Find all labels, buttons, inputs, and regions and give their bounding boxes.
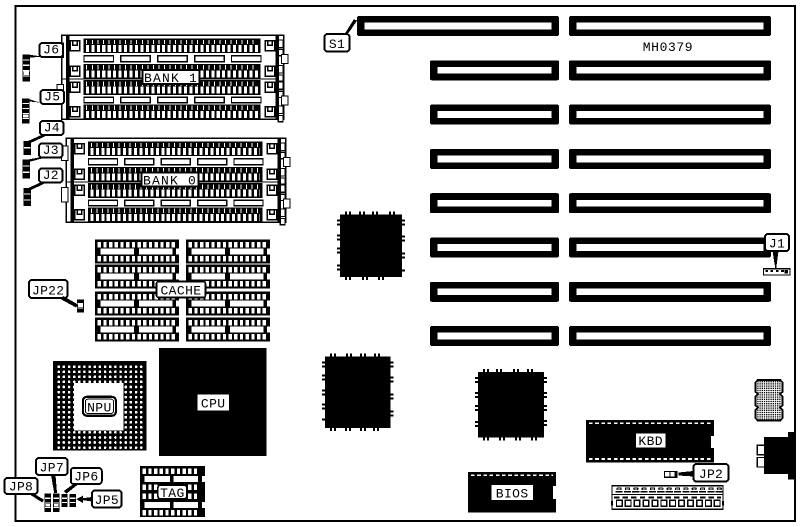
svg-text:J4: J4 xyxy=(44,121,60,136)
svg-text:J5: J5 xyxy=(44,90,60,105)
svg-text:JP6: JP6 xyxy=(74,470,98,485)
svg-text:BANK 0: BANK 0 xyxy=(143,173,197,188)
svg-text:JP8: JP8 xyxy=(9,480,33,495)
svg-text:S1: S1 xyxy=(329,37,345,52)
svg-text:JP5: JP5 xyxy=(95,493,119,508)
svg-text:BIOS: BIOS xyxy=(496,486,529,501)
svg-text:CPU: CPU xyxy=(201,397,226,412)
svg-text:BANK 1: BANK 1 xyxy=(144,71,198,86)
svg-text:J1: J1 xyxy=(769,237,785,252)
svg-text:JP7: JP7 xyxy=(40,461,64,476)
svg-text:CACHE: CACHE xyxy=(160,284,201,299)
svg-text:J3: J3 xyxy=(43,143,59,158)
svg-text:NPU: NPU xyxy=(87,401,112,416)
svg-text:J2: J2 xyxy=(43,168,59,183)
svg-text:JP22: JP22 xyxy=(32,284,64,299)
svg-text:MH0379: MH0379 xyxy=(643,40,693,55)
svg-text:TAG: TAG xyxy=(160,486,185,501)
svg-text:JP2: JP2 xyxy=(699,467,723,482)
svg-text:J6: J6 xyxy=(43,43,59,58)
svg-text:KBD: KBD xyxy=(638,434,663,449)
